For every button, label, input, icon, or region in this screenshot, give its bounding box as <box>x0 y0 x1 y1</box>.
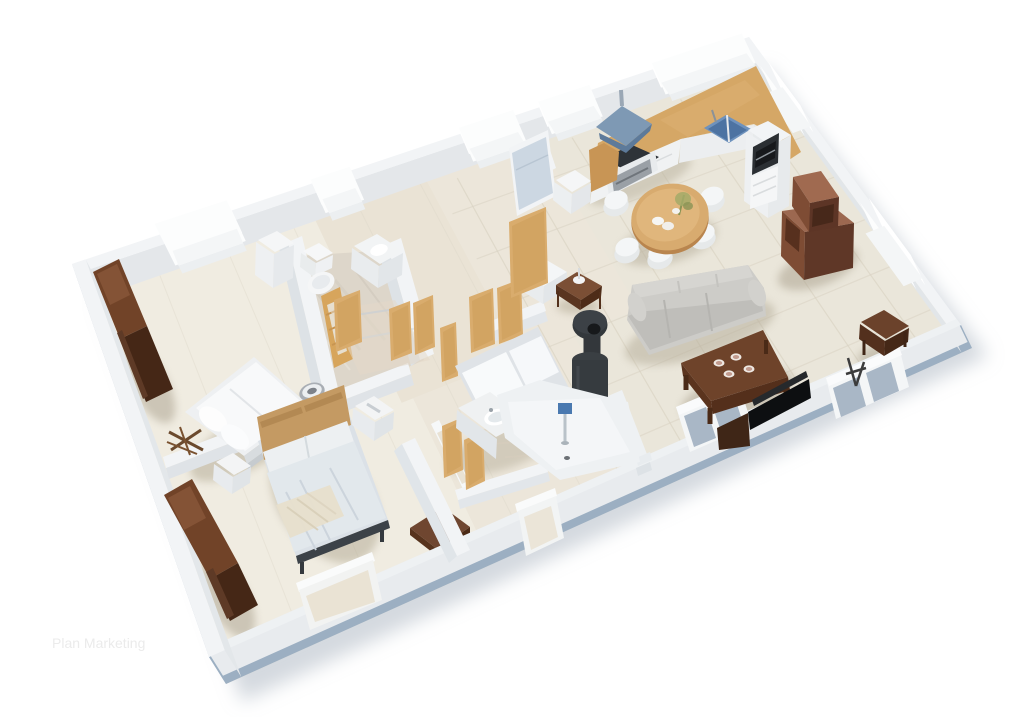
svg-text:Plan Marketing: Plan Marketing <box>52 635 145 651</box>
